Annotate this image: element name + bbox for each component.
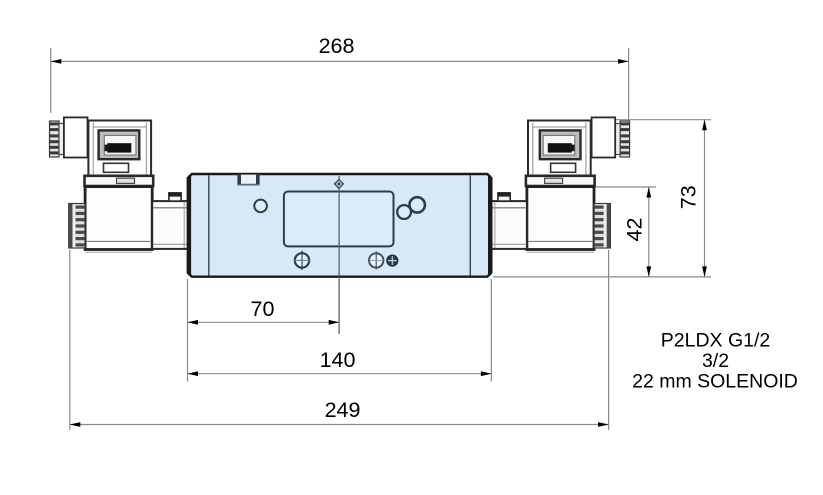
svg-text:268: 268 [319,34,355,58]
svg-text:3/2: 3/2 [702,350,729,372]
svg-text:42: 42 [623,218,647,242]
svg-text:140: 140 [320,348,356,372]
svg-text:P2LDX G1/2: P2LDX G1/2 [661,330,770,352]
svg-text:22 mm SOLENOID: 22 mm SOLENOID [632,371,798,393]
svg-text:70: 70 [251,297,275,321]
svg-text:73: 73 [676,185,700,209]
svg-text:249: 249 [325,398,361,422]
